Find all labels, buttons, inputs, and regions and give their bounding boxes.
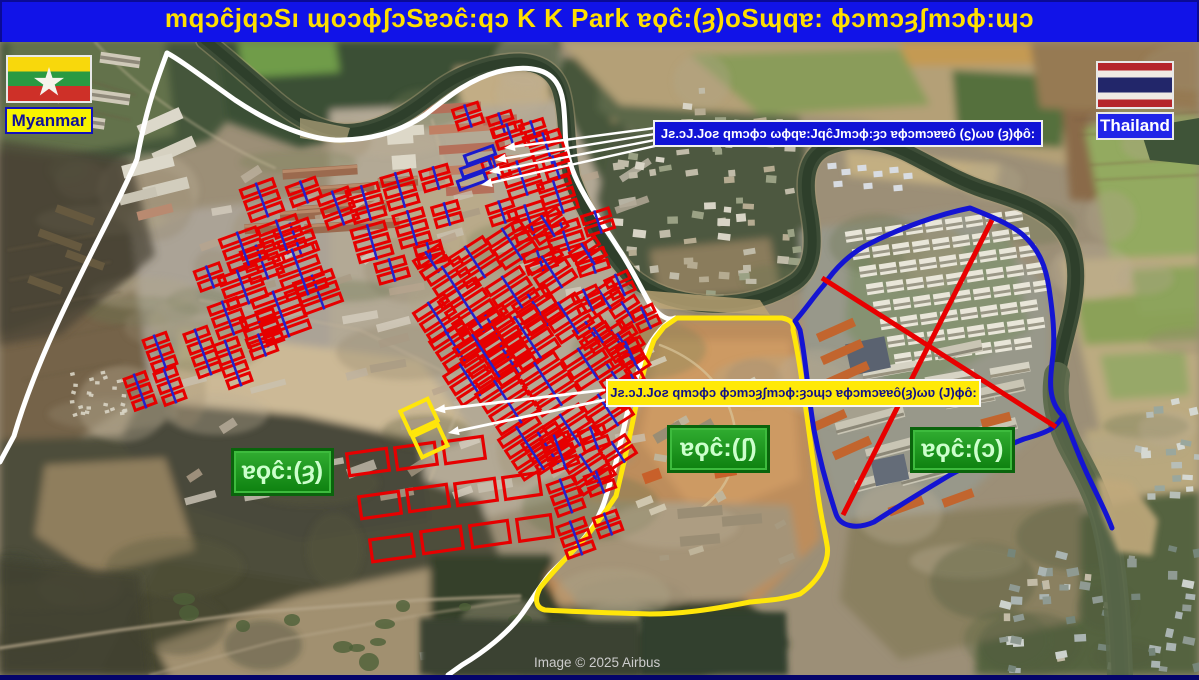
svg-text:Image © 2025 Airbus: Image © 2025 Airbus: [534, 655, 661, 670]
